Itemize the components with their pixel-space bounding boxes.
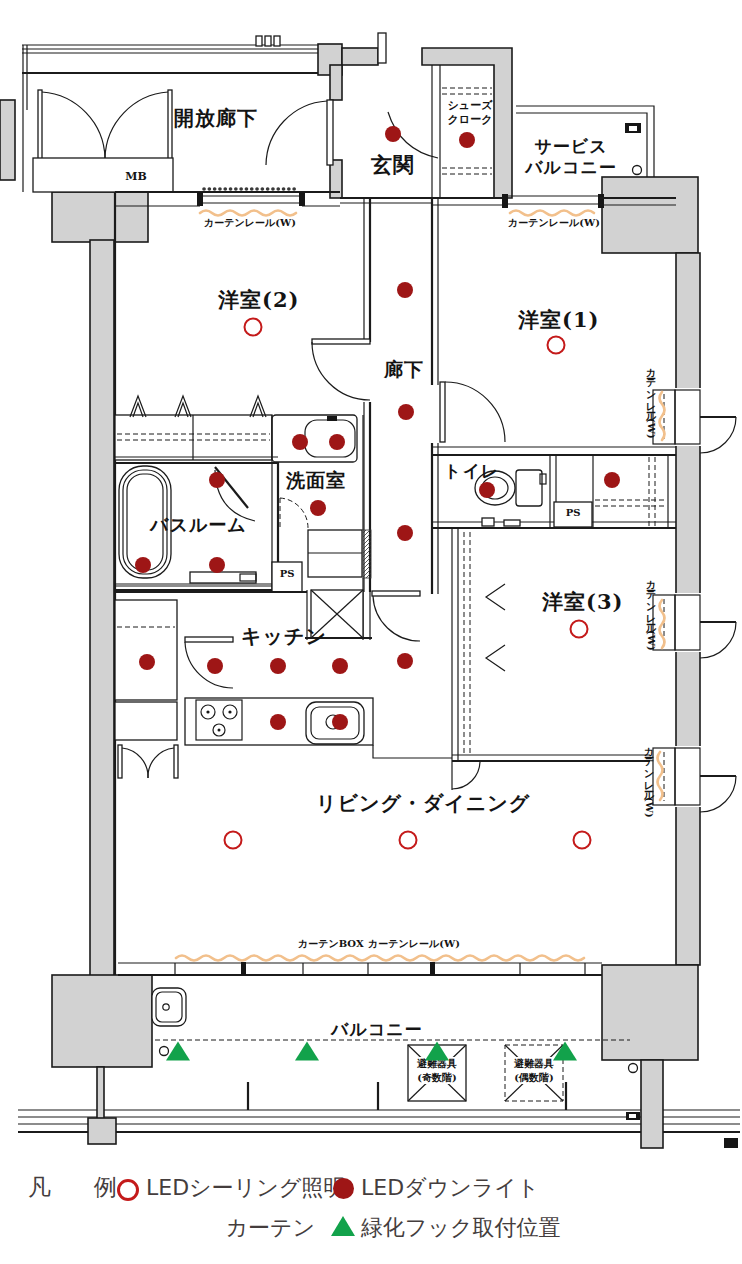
room-label-balcony: バルコニー (331, 1019, 423, 1040)
greening-hook-symbol (295, 1042, 319, 1061)
annotation-curtain-rail-ld: カーテンレール(W) (368, 938, 460, 951)
room-label-western-room-3: 洋室(3) (542, 589, 623, 615)
annotation-curtain-rail-side-3: カーテンレール(W) (642, 740, 655, 818)
room-label-open-corridor: 開放廊下 (174, 106, 258, 131)
room-label-living-dining: リビング・ダイニング (316, 791, 530, 816)
room-label-service-balcony: サービス バルコニー (525, 136, 617, 179)
led-downlight-symbol (479, 482, 495, 498)
annotation-evac-even: 避難器具 (偶数階) (510, 1057, 558, 1084)
floor-plan-linework (0, 0, 742, 1264)
led-downlight-symbol (398, 404, 414, 420)
led-ceiling-light-symbol (399, 831, 418, 850)
led-downlight-symbol (385, 126, 401, 142)
led-downlight-symbol (270, 714, 286, 730)
greening-hook-symbol (166, 1042, 190, 1061)
legend-ceiling-light-label: LEDシーリング照明 (146, 1173, 345, 1203)
legend-curtain-label: カーテン (205, 1213, 315, 1243)
greening-hook-symbol (553, 1042, 577, 1061)
led-downlight-symbol (270, 658, 286, 674)
led-downlight-symbol (310, 500, 326, 516)
led-downlight-symbol (209, 557, 225, 573)
annotation-evac-odd: 避難器具 (奇数階) (413, 1057, 461, 1084)
led-downlight-symbol (329, 434, 345, 450)
led-ceiling-light-symbol (224, 831, 243, 850)
room-label-western-room-2: 洋室(2) (218, 287, 299, 313)
led-downlight-symbol (292, 434, 308, 450)
room-label-bathroom: バスルーム (150, 514, 247, 537)
led-ceiling-light-legend-icon (117, 1179, 139, 1201)
led-downlight-symbol (459, 132, 475, 148)
led-ceiling-light-symbol (244, 318, 263, 337)
room-label-entrance: 玄関 (371, 152, 415, 178)
room-label-western-room-1: 洋室(1) (518, 307, 599, 333)
annotation-curtain-rail-side-1: カーテンレール(W) (644, 361, 657, 439)
annotation-curtain-rail-w2: カーテンレール(W) (204, 217, 296, 230)
room-label-mb: MB (118, 170, 154, 184)
led-downlight-symbol (332, 658, 348, 674)
legend-title: 凡 例 (28, 1172, 127, 1203)
room-label-toilet: トイレ (444, 461, 499, 482)
led-downlight-symbol (397, 653, 413, 669)
label-ps-2: PS (554, 507, 592, 520)
led-ceiling-light-symbol (570, 620, 589, 639)
led-ceiling-light-symbol (547, 336, 566, 355)
led-downlight-legend-icon (333, 1178, 354, 1199)
room-label-hallway: 廊下 (384, 358, 424, 382)
led-ceiling-light-symbol (573, 831, 592, 850)
label-ps-1: PS (272, 568, 302, 581)
led-downlight-symbol (332, 714, 348, 730)
legend-downlight-label: LEDダウンライト (361, 1173, 539, 1203)
led-downlight-symbol (397, 282, 413, 298)
led-downlight-symbol (209, 472, 225, 488)
room-label-shoe-closet: シューズ クローク (442, 99, 498, 127)
led-downlight-symbol (604, 472, 620, 488)
annotation-curtain-rail-w1: カーテンレール(W) (508, 217, 600, 230)
greening-hook-symbol (425, 1042, 449, 1061)
annotation-curtain-box: カーテンBOX (298, 938, 364, 951)
legend-hook-label: 緑化フック取付位置 (361, 1213, 561, 1243)
greening-hook-legend-icon (331, 1216, 355, 1236)
floor-plan: 開放廊下 MB 玄関 シューズ クローク サービス バルコニー カーテンレール(… (0, 0, 742, 1264)
led-downlight-symbol (207, 658, 223, 674)
led-downlight-symbol (139, 654, 155, 670)
led-downlight-symbol (135, 557, 151, 573)
led-downlight-symbol (397, 525, 413, 541)
annotation-curtain-rail-side-2: カーテンレール(W) (644, 573, 657, 651)
room-label-kitchen: キッチン (241, 624, 327, 649)
room-label-washroom: 洗面室 (286, 469, 346, 493)
